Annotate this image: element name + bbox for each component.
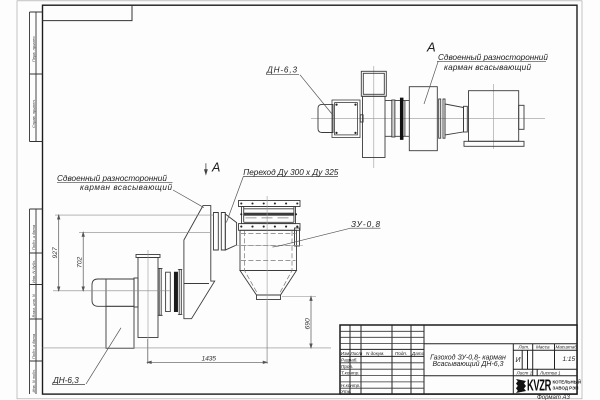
svg-text:Инв. N дубл.: Инв. N дубл. xyxy=(31,260,36,283)
svg-text:Перв. примен.: Перв. примен. xyxy=(31,35,36,62)
svg-text:Подп. и дата: Подп. и дата xyxy=(31,224,36,250)
svg-text:Масса: Масса xyxy=(536,345,550,350)
svg-text:Разраб.: Разраб. xyxy=(341,358,358,363)
svg-text:Подп. и дата: Подп. и дата xyxy=(31,333,36,359)
svg-text:Подп.: Подп. xyxy=(395,351,407,356)
svg-text:ЗУ-0,8: ЗУ-0,8 xyxy=(351,220,380,229)
svg-text:карман всасывающий: карман всасывающий xyxy=(444,63,531,72)
svg-text:ДН-6,3: ДН-6,3 xyxy=(266,66,297,75)
svg-text:1435: 1435 xyxy=(202,355,217,362)
svg-text:карман всасывающий: карман всасывающий xyxy=(80,183,172,192)
svg-text:Дата: Дата xyxy=(411,351,425,356)
svg-text:ДН-6,3: ДН-6,3 xyxy=(52,376,79,385)
svg-text:Справ. примен.: Справ. примен. xyxy=(31,99,36,128)
svg-text:Сдвоенный разносторонний: Сдвоенный разносторонний xyxy=(57,174,167,183)
svg-text:КОТЕЛЬНЫЙ: КОТЕЛЬНЫЙ xyxy=(553,380,582,385)
svg-text:702: 702 xyxy=(77,256,84,268)
svg-text:Инв. N подл.: Инв. N подл. xyxy=(31,369,36,392)
svg-text:Переход Ду 300 х Ду 325: Переход Ду 300 х Ду 325 xyxy=(243,168,338,177)
svg-text:690: 690 xyxy=(305,318,312,330)
svg-text:Взам. инв. N: Взам. инв. N xyxy=(31,294,36,317)
svg-text:ЗАВОД РЭП: ЗАВОД РЭП xyxy=(553,386,579,391)
svg-text:Формат А3: Формат А3 xyxy=(537,395,570,400)
svg-text:А: А xyxy=(426,40,436,55)
svg-text:927: 927 xyxy=(52,247,59,259)
svg-text:Сдвоенный разносторонний: Сдвоенный разносторонний xyxy=(438,53,548,62)
svg-text:Утв.: Утв. xyxy=(341,389,351,394)
svg-text:Масштаб: Масштаб xyxy=(556,345,578,350)
svg-text:Лит.: Лит. xyxy=(518,345,530,350)
svg-text:Н.контр.: Н.контр. xyxy=(341,383,360,388)
svg-text:Лист 1: Лист 1 xyxy=(516,370,533,375)
svg-text:Изм.Лист: Изм.Лист xyxy=(341,351,363,356)
svg-text:Всасывающий ДН-6,3: Всасывающий ДН-6,3 xyxy=(432,360,503,368)
svg-text:1:15: 1:15 xyxy=(563,356,576,363)
svg-text:Т.контр.: Т.контр. xyxy=(341,370,360,375)
svg-text:N докум.: N докум. xyxy=(366,351,385,356)
svg-text:KVZR: KVZR xyxy=(527,376,552,394)
svg-text:Пров.: Пров. xyxy=(341,364,353,369)
svg-text:А: А xyxy=(211,161,220,175)
svg-text:Листов 1: Листов 1 xyxy=(539,370,561,375)
